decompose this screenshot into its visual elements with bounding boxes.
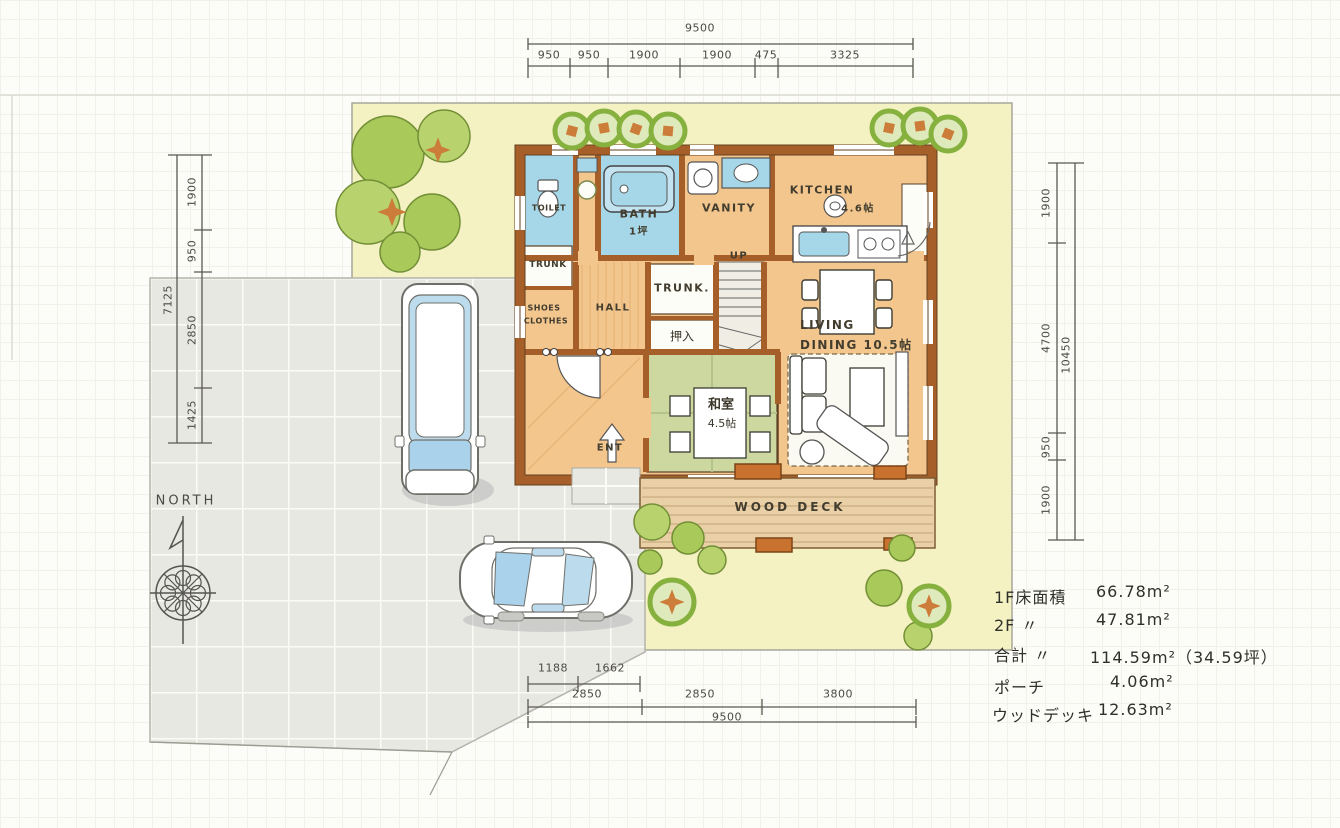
room-label-entrance: ENT xyxy=(597,443,624,454)
area-row-0-value: 66.78m² xyxy=(1096,582,1171,601)
area-row-3-value: 4.06m² xyxy=(1110,672,1174,691)
dim-top-seg-2: 1900 xyxy=(629,49,659,62)
room-label-washitsu: 和室 xyxy=(708,394,734,413)
dim-top-seg-0: 950 xyxy=(538,49,561,62)
coffee-table xyxy=(850,368,884,426)
room-label-kitchen-size: 4.6帖 xyxy=(841,200,875,215)
dim-right-seg-2: 950 xyxy=(1040,436,1053,459)
room-label-bath: BATH xyxy=(620,208,659,221)
tv-board xyxy=(896,352,908,436)
vanity-counter xyxy=(722,158,770,188)
dim-left-seg-1: 950 xyxy=(186,240,199,263)
room-label-clothes: CLOTHES xyxy=(524,317,568,326)
bathtub xyxy=(604,166,674,212)
dim-right-overall: 10450 xyxy=(1060,336,1073,374)
room-label-vanity: VANITY xyxy=(702,202,756,215)
compass-north-label: NORTH xyxy=(156,494,217,509)
dim-top-seg-1: 950 xyxy=(578,49,601,62)
area-row-4-label: ウッドデッキ xyxy=(992,702,1094,726)
room-label-oshiire: 押入 xyxy=(670,328,694,345)
room-label-washitsu-size: 4.5帖 xyxy=(708,415,737,431)
dim-bottom-seg-1: 2850 xyxy=(685,688,715,701)
area-row-4-value: 12.63m² xyxy=(1098,700,1173,719)
dim-top-seg-5: 3325 xyxy=(830,49,860,62)
dim-top-overall: 9500 xyxy=(685,22,715,35)
sedan xyxy=(460,536,633,632)
room-label-living: LIVING xyxy=(800,318,855,332)
area-row-1-label: 2F 〃 xyxy=(994,612,1038,636)
dim-left-overall: 7125 xyxy=(162,285,175,315)
room-label-trunk-b: TRUNK. xyxy=(654,282,710,295)
dim-left-seg-2: 2850 xyxy=(186,315,199,345)
area-row-3-label: ポーチ xyxy=(994,674,1045,698)
dim-right-seg-0: 1900 xyxy=(1040,188,1053,218)
area-row-2-value: 114.59m²（34.59坪） xyxy=(1090,644,1278,668)
dim-bottom-sub-0: 1188 xyxy=(538,662,568,675)
washing-machine xyxy=(688,162,718,194)
dim-bottom-seg-2: 3800 xyxy=(823,688,853,701)
wood-deck-label: WOOD DECK xyxy=(734,500,845,514)
room-label-toilet: TOILET xyxy=(532,204,566,213)
room-label-shoes: SHOES xyxy=(528,304,561,313)
room-label-trunk-a: TRUNK xyxy=(529,260,566,270)
stairs-up-label: UP xyxy=(730,251,748,262)
stairs xyxy=(716,262,764,352)
floor-plan-canvas: 9500 950 950 1900 1900 475 3325 7125 190… xyxy=(0,0,1340,828)
dim-right-seg-1: 4700 xyxy=(1040,323,1053,353)
street-shrubs-top-right xyxy=(872,109,965,151)
room-label-hall: HALL xyxy=(596,303,631,314)
dim-top-seg-3: 1900 xyxy=(702,49,732,62)
dim-right-seg-3: 1900 xyxy=(1040,485,1053,515)
area-row-2-label: 合計 〃 xyxy=(994,642,1051,666)
room-label-kitchen: KITCHEN xyxy=(790,184,855,197)
dim-left-seg-3: 1425 xyxy=(186,400,199,430)
dim-bottom-sub-1: 1662 xyxy=(595,662,625,675)
dim-left-seg-0: 1900 xyxy=(186,177,199,207)
room-label-dining: DINING 10.5帖 xyxy=(800,336,913,353)
dim-top-seg-4: 475 xyxy=(755,49,778,62)
area-row-0-label: 1F床面積 xyxy=(994,584,1066,608)
area-row-1-value: 47.81m² xyxy=(1096,610,1171,629)
house xyxy=(515,145,937,485)
curb-lines xyxy=(150,742,452,795)
dim-bottom-seg-0: 2850 xyxy=(572,688,602,701)
room-label-bath-size: 1坪 xyxy=(629,223,649,238)
dim-bottom-overall: 9500 xyxy=(712,711,742,724)
porch xyxy=(572,468,640,504)
